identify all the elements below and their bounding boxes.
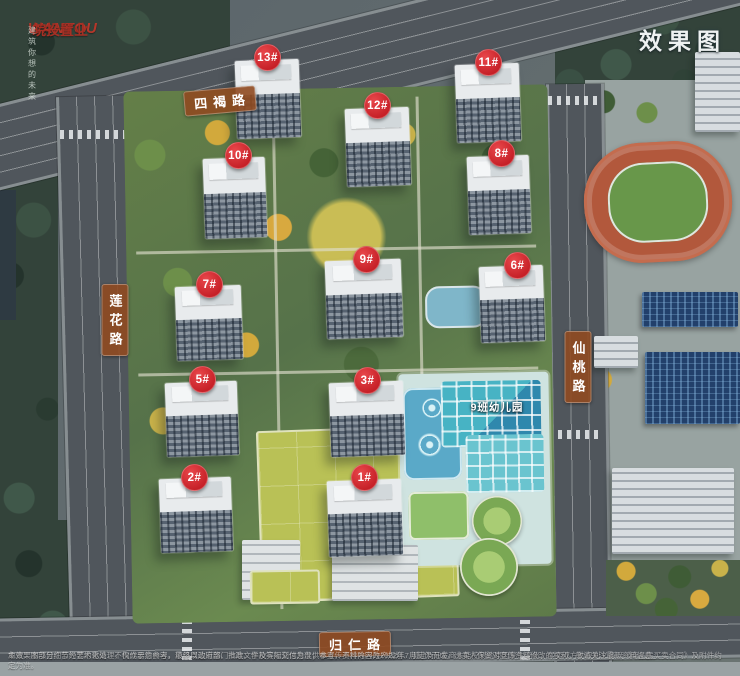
building-8: [467, 155, 532, 235]
crosswalk: [549, 430, 603, 439]
kindergarten-court: [408, 491, 469, 540]
solar-roof-building: [642, 292, 738, 327]
building-5: [165, 381, 240, 457]
building-3: [329, 381, 406, 458]
water-feature: [425, 285, 488, 328]
building-11: [455, 63, 522, 143]
stadium-track: [581, 138, 735, 266]
solar-roof-building: [645, 352, 740, 424]
building-10: [203, 157, 268, 239]
kindergarten-area: [398, 372, 551, 567]
logo-tagline: 建筑你想的未来: [28, 25, 40, 102]
campus-building: [594, 336, 638, 368]
edge-building: [0, 190, 16, 320]
building-13: [235, 59, 302, 139]
building-2: [159, 477, 234, 553]
building-12: [345, 107, 412, 187]
stadium-field: [606, 159, 710, 244]
campus-building: [612, 468, 734, 554]
building-7: [175, 285, 244, 361]
site-path: [136, 245, 536, 255]
trees-bottom-right: [606, 560, 740, 616]
building-1: [327, 479, 404, 558]
building-9: [325, 259, 404, 340]
crosswalk: [548, 96, 602, 105]
entrance-lawn: [250, 569, 321, 604]
disclaimer-line-2: 本效果图部分细节经艺术化处理，仅作示意参考，最终以政府部门批准文件及实际交付为准…: [8, 651, 659, 661]
playground-circle: [460, 538, 518, 596]
aerial-rendering: 13#12#11#10#8#9#7#6#5#3#2#1#四褐路莲花路仙桃路归仁路…: [0, 0, 740, 676]
white-tower: [695, 52, 740, 132]
kindergarten-roof: [465, 434, 544, 493]
building-6: [479, 265, 546, 343]
render-type-tag: 效果图: [639, 22, 726, 56]
logo-cn: 皖投置业: [32, 20, 88, 40]
